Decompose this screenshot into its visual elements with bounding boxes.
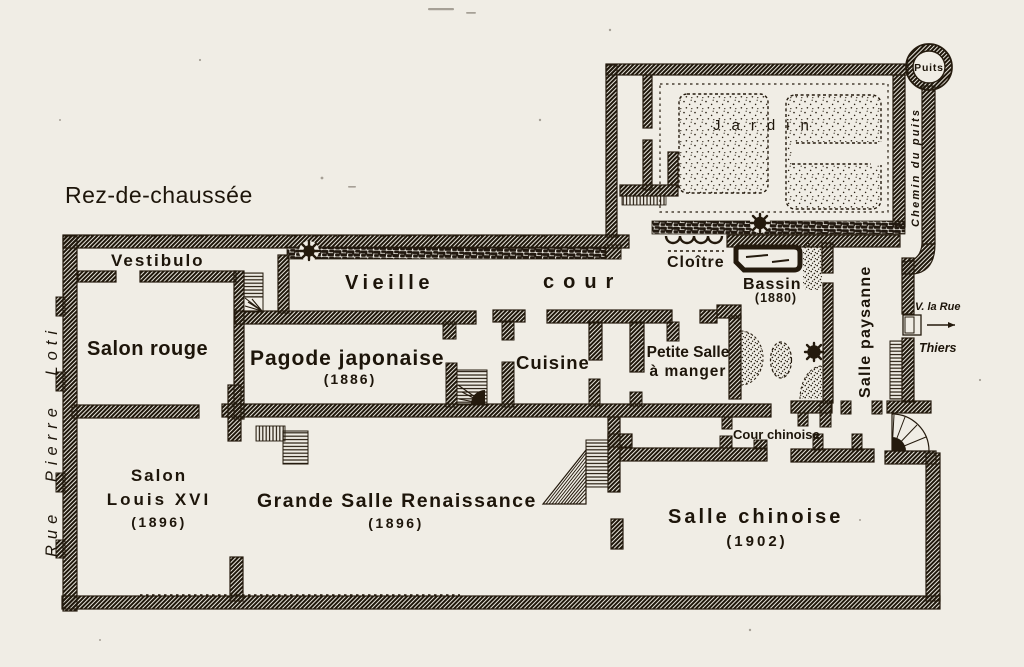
svg-text:à manger: à manger — [650, 363, 727, 380]
svg-text:Puits: Puits — [914, 62, 944, 74]
svg-text:Jardin: Jardin — [713, 117, 820, 134]
svg-text:(1880): (1880) — [755, 291, 797, 305]
svg-text:Salle chinoise: Salle chinoise — [668, 506, 843, 528]
svg-text:Chemin du puits: Chemin du puits — [910, 108, 922, 227]
svg-text:Rez-de-chaussée: Rez-de-chaussée — [65, 182, 253, 208]
svg-text:Rue Pierre Loti: Rue Pierre Loti — [43, 325, 61, 557]
svg-text:(1896): (1896) — [131, 514, 186, 530]
svg-text:Thiers: Thiers — [919, 341, 957, 355]
svg-text:Cloître: Cloître — [667, 254, 725, 271]
svg-text:Vestibulo: Vestibulo — [111, 251, 205, 270]
svg-text:(1886): (1886) — [324, 371, 376, 387]
svg-text:Grande Salle Renaissance: Grande Salle Renaissance — [257, 490, 537, 512]
svg-text:cour: cour — [543, 271, 622, 293]
svg-text:Cuisine: Cuisine — [516, 352, 590, 373]
svg-text:Louis XVI: Louis XVI — [107, 490, 211, 509]
svg-text:Cour chinoise: Cour chinoise — [733, 427, 820, 442]
svg-text:V. la Rue: V. la Rue — [915, 301, 960, 313]
svg-text:Pagode japonaise: Pagode japonaise — [250, 347, 445, 370]
svg-text:Vieille: Vieille — [345, 272, 434, 294]
svg-text:(1902): (1902) — [726, 533, 787, 550]
svg-text:Salle paysanne: Salle paysanne — [857, 266, 874, 398]
svg-text:Petite Salle: Petite Salle — [647, 344, 730, 361]
svg-text:(1896): (1896) — [368, 515, 423, 531]
svg-text:Salon: Salon — [131, 466, 187, 485]
svg-text:Salon rouge: Salon rouge — [87, 338, 208, 360]
